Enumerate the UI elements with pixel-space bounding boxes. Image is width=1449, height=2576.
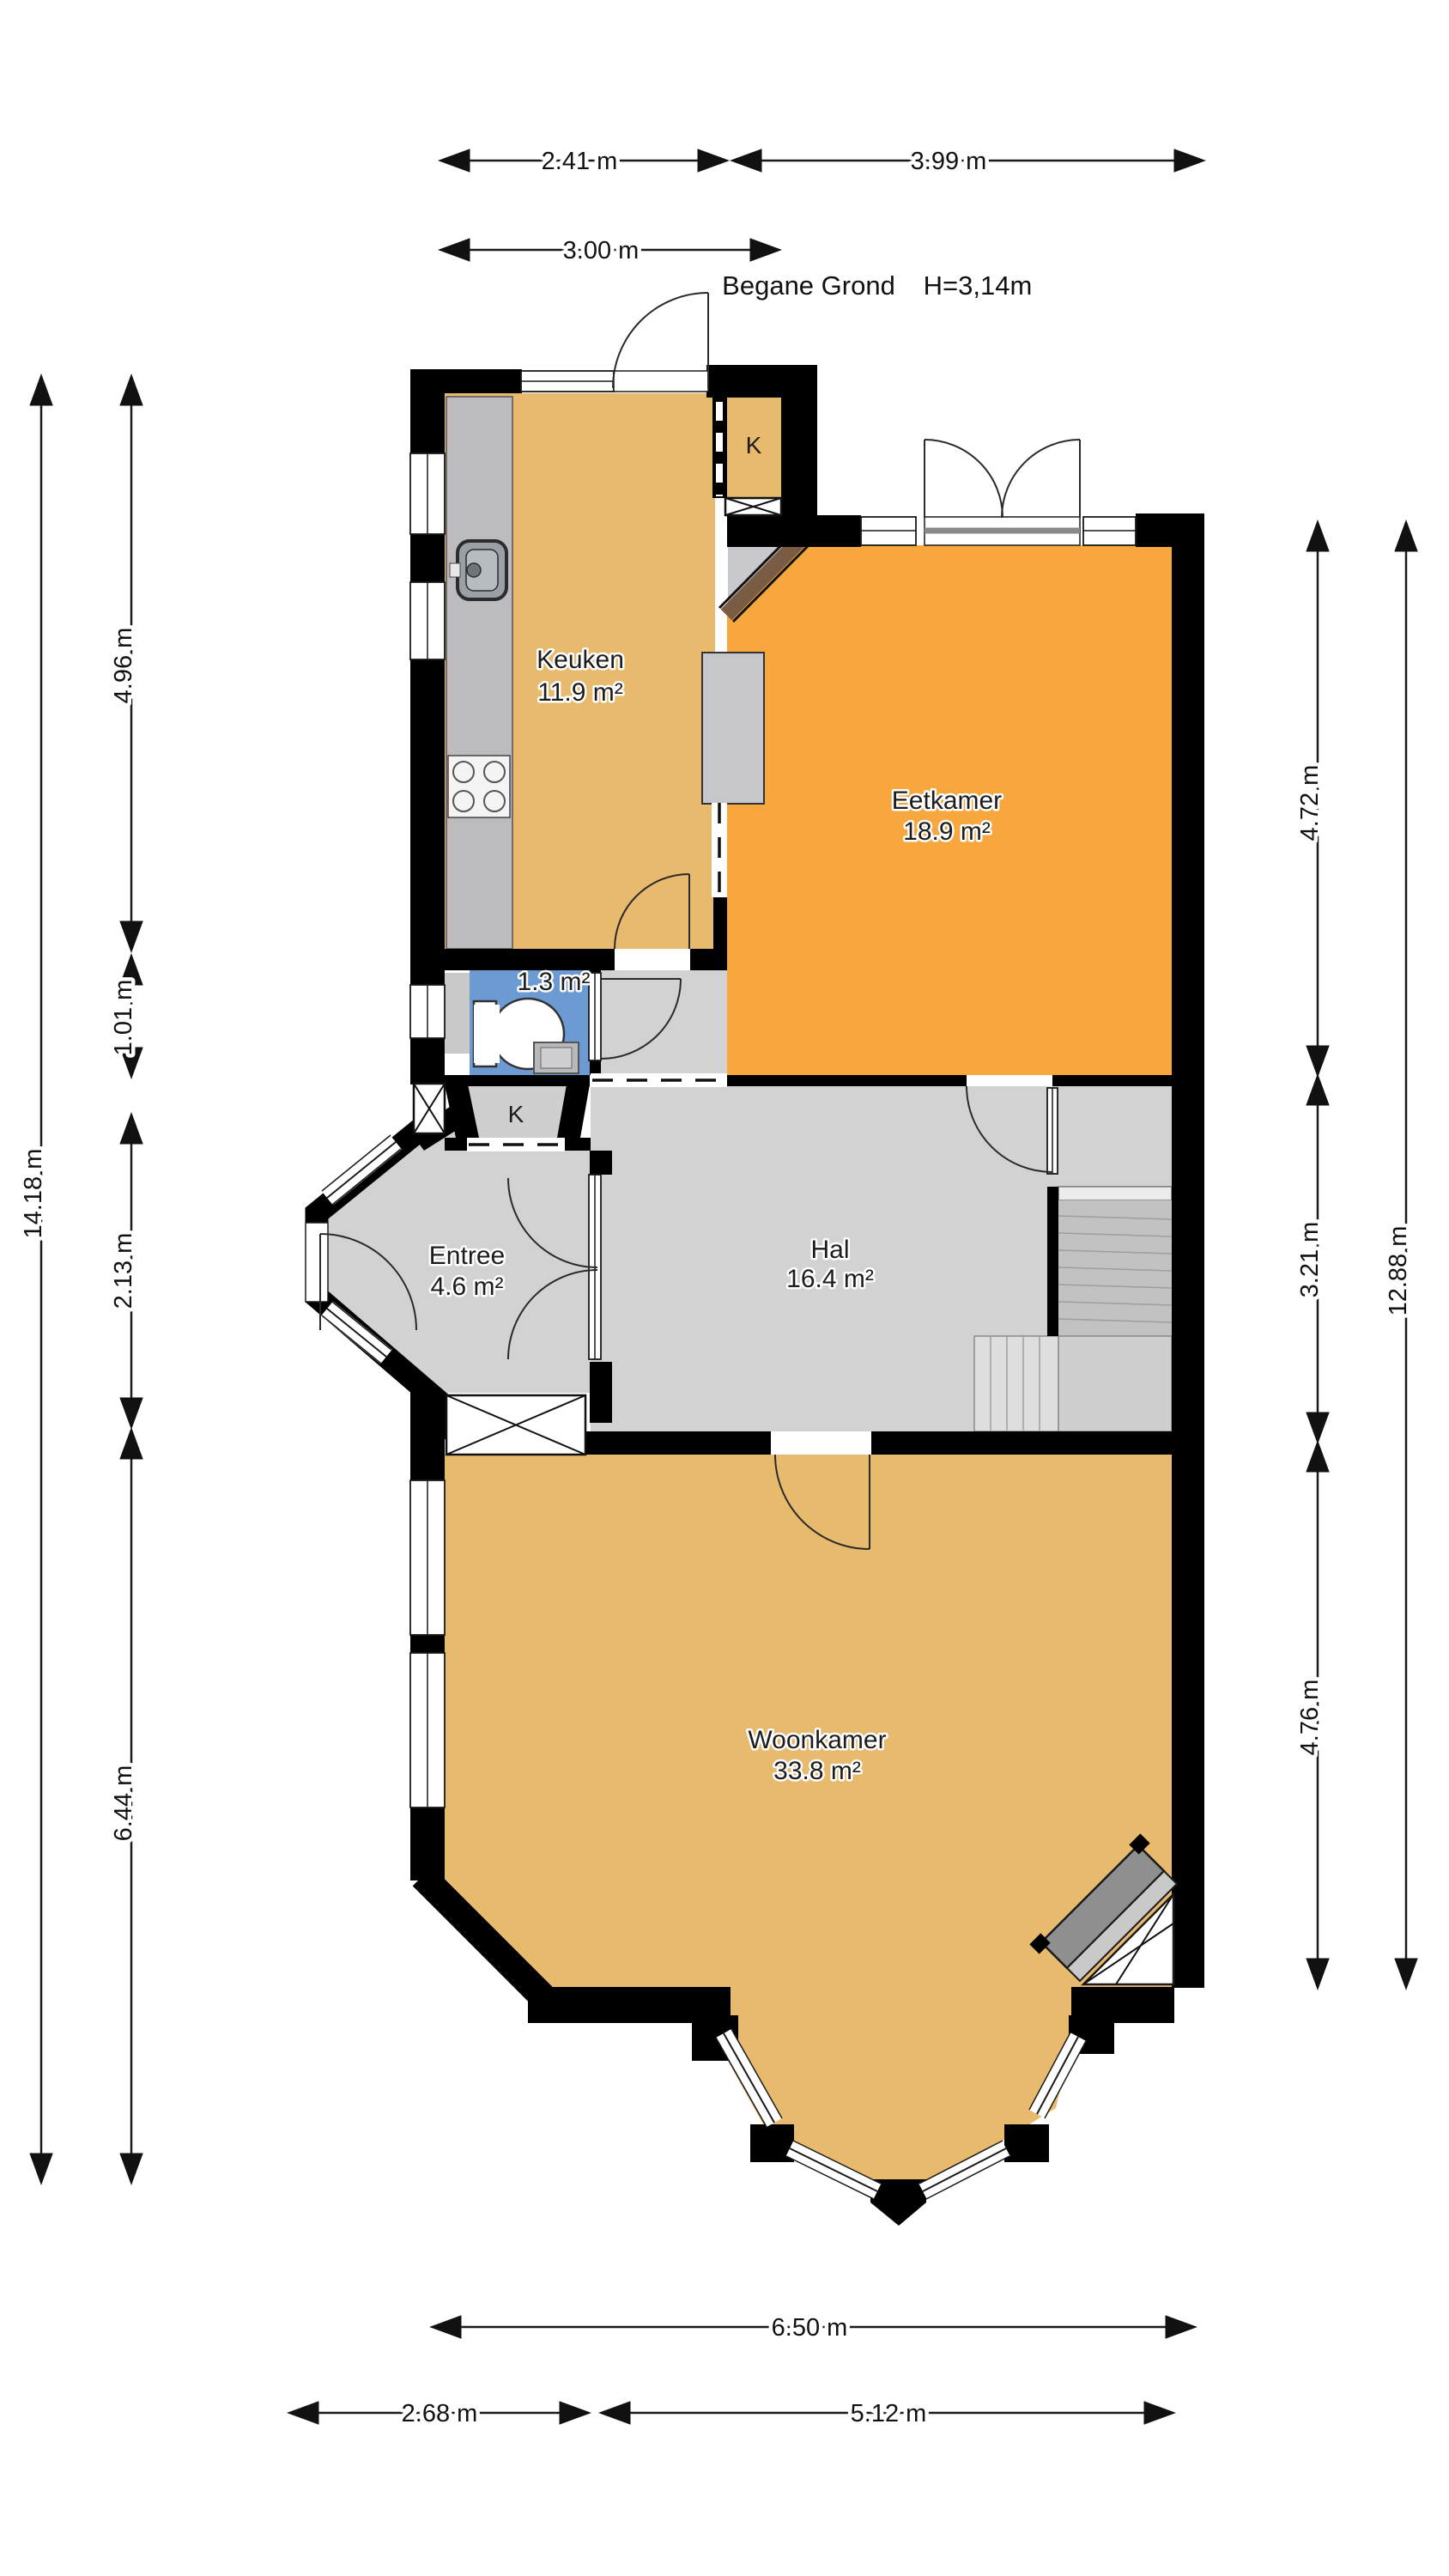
window-woonkamer-left-b <box>410 1653 445 1807</box>
dim-top-2: 3.99 m <box>911 148 987 175</box>
door-french-left <box>925 440 1003 518</box>
kitchen-sink <box>450 541 506 599</box>
closet-top-label: K <box>746 432 762 459</box>
closet-hall-label: K <box>508 1101 524 1127</box>
dim-right-1: 4.72 m <box>1296 765 1324 841</box>
wall-pier <box>445 973 470 1054</box>
keuken-name-label: Keuken <box>537 646 624 674</box>
window-kitchen-left-b <box>410 582 445 659</box>
kitchen-top-door-opening <box>614 371 708 392</box>
hal-name-label: Hal <box>810 1236 849 1264</box>
dim-left-4: 6.44 m <box>110 1765 137 1842</box>
dim-left-1: 4.96 m <box>110 628 137 704</box>
eetkamer-area-label: 18.9 m² <box>903 817 991 846</box>
window-eetkamer-top-b <box>1083 517 1136 545</box>
entree-area-label: 4.6 m² <box>430 1273 503 1301</box>
door-french-right <box>1002 440 1080 518</box>
dim-left-total: 14.18 m <box>20 1149 47 1239</box>
dim-top-1: 2.41 m <box>542 148 618 175</box>
dim-top-3: 3.00 m <box>563 237 640 264</box>
dim-bottom-2: 5.12 m <box>851 2400 927 2427</box>
hal-area-label: 16.4 m² <box>786 1265 874 1293</box>
frame-toilet-door <box>589 973 601 1060</box>
woonkamer-area-label: 33.8 m² <box>773 1757 861 1785</box>
window-woonkamer-left-a <box>410 1480 445 1635</box>
toilet-area-label: 1.3 m² <box>517 968 590 996</box>
woonkamer-name-label: Woonkamer <box>748 1726 886 1754</box>
dim-bottom-total: 6.50 m <box>772 2314 848 2342</box>
floorplan-page: Begane Grond H=3,14m Keuken 11.9 m² Eetk… <box>0 0 1449 2576</box>
dim-left-3: 2.13 m <box>110 1233 137 1309</box>
floorplan-canvas: Begane Grond H=3,14m Keuken 11.9 m² Eetk… <box>0 0 1449 2576</box>
entree-name-label: Entree <box>429 1242 505 1270</box>
window-toilet-left <box>410 985 445 1038</box>
kitchen-door-opening <box>615 949 690 970</box>
dim-right-2: 3.21 m <box>1296 1222 1324 1298</box>
dim-right-3: 4.76 m <box>1296 1680 1324 1756</box>
keuken-area-label: 11.9 m² <box>537 678 622 707</box>
dim-right-total: 12.88 m <box>1385 1226 1412 1316</box>
window-eetkamer-top-a <box>861 517 916 545</box>
kitchen-stove <box>448 756 510 817</box>
kitchen-island <box>702 653 764 804</box>
window-kitchen-left-a <box>410 453 445 534</box>
room-hal-upper <box>601 970 727 1091</box>
faucet-icon <box>467 563 481 577</box>
woonkamer-door-opening <box>771 1431 871 1455</box>
window-kitchen-top <box>521 371 614 392</box>
dim-left-2: 1.01 m <box>110 980 137 1056</box>
frame-hal-eetkamer-door <box>1047 1088 1058 1174</box>
eetkamer-hal-door-opening <box>967 1075 1052 1086</box>
ceiling-height-label: H=3,14m <box>924 270 1033 301</box>
plan-title: Begane Grond <box>722 270 895 301</box>
eetkamer-name-label: Eetkamer <box>892 787 1002 815</box>
dim-bottom-1: 2.68 m <box>402 2400 478 2427</box>
